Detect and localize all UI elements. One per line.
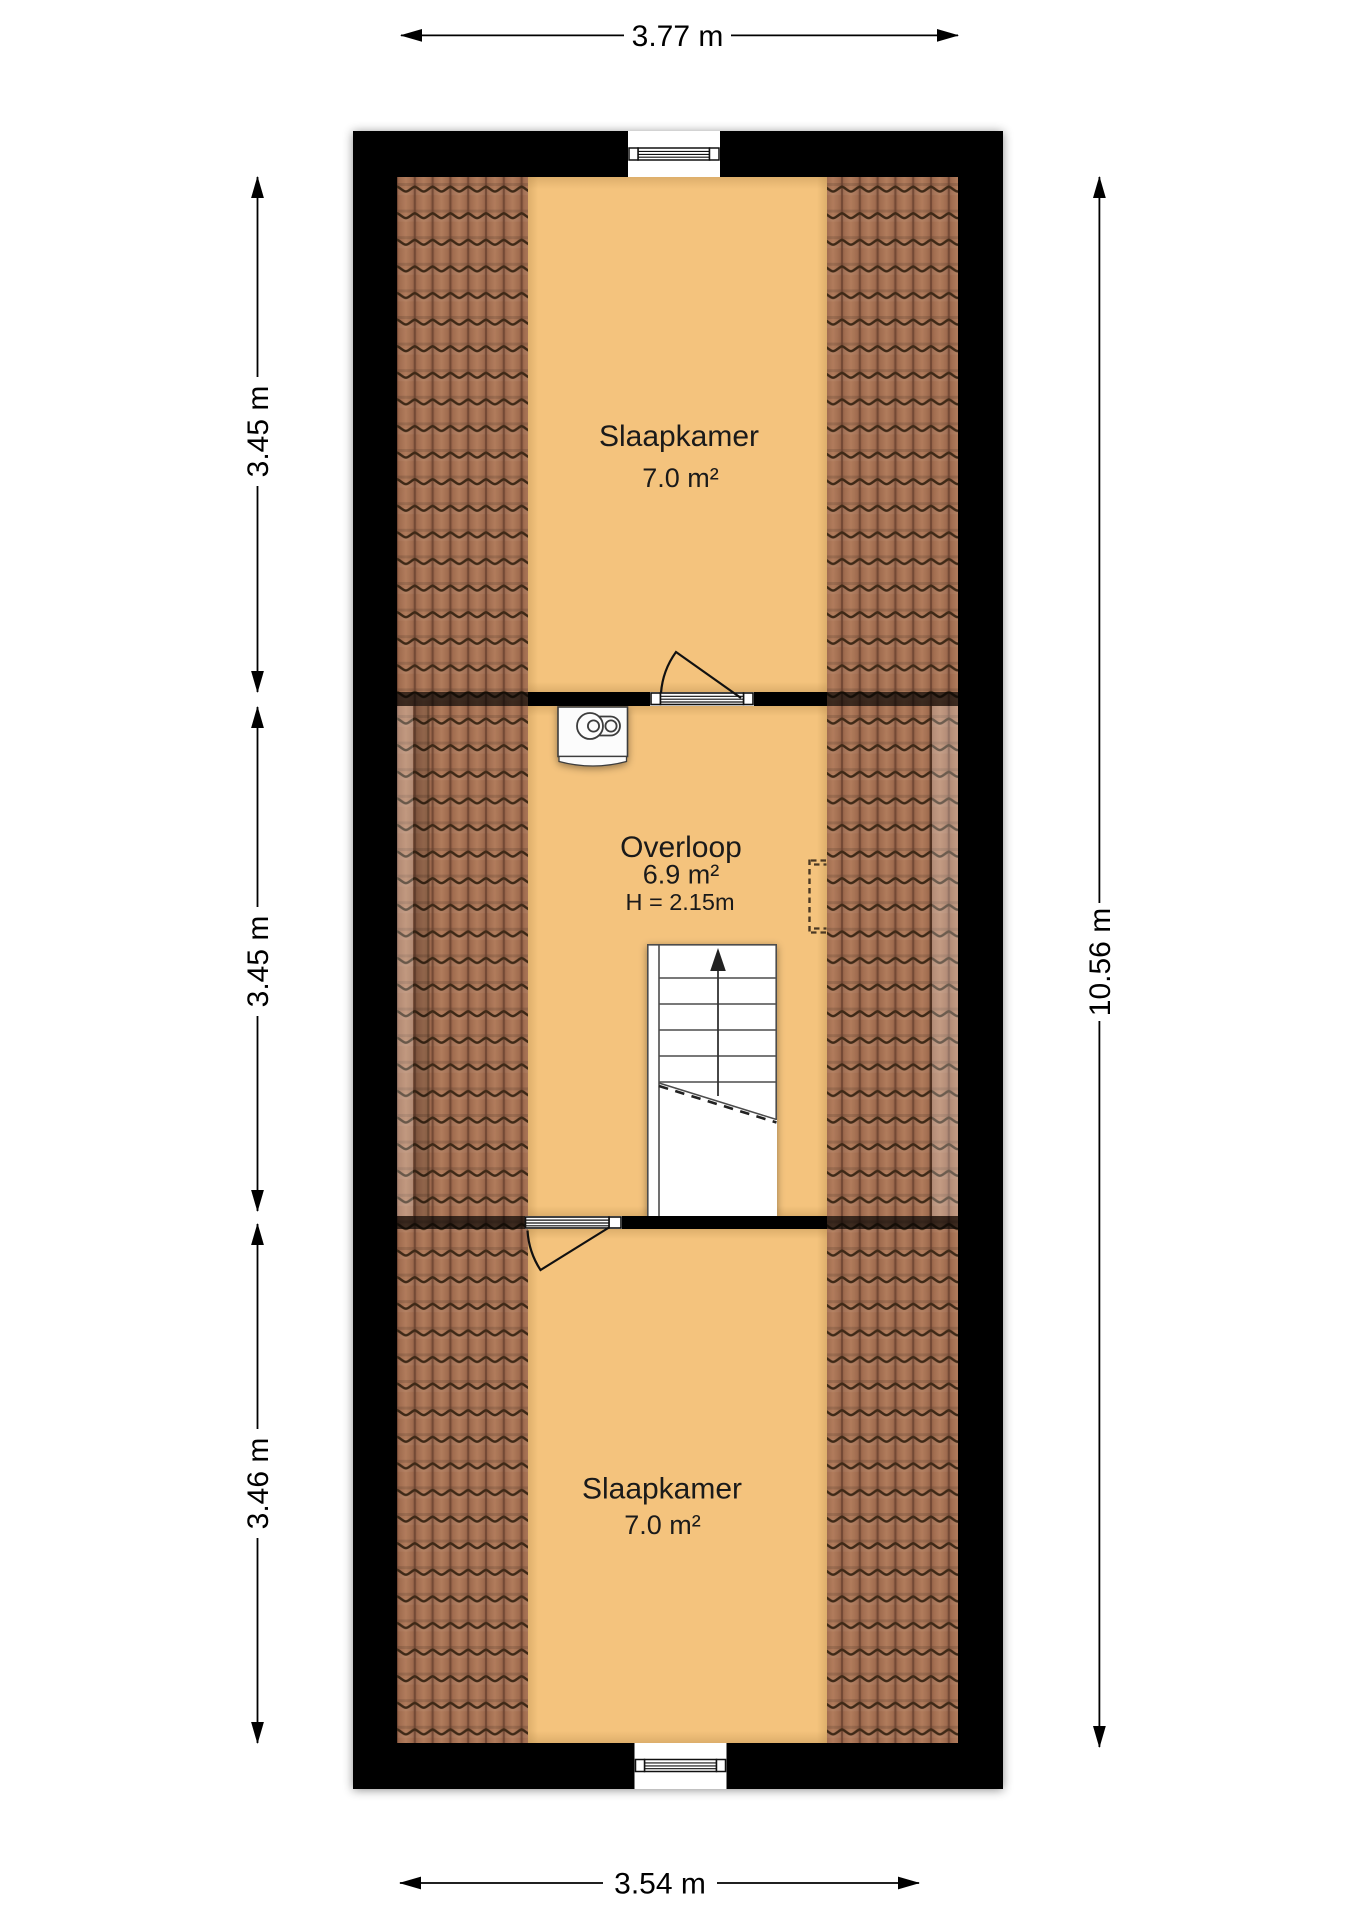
svg-text:6.9 m²: 6.9 m² xyxy=(643,860,720,890)
svg-text:H = 2.15m: H = 2.15m xyxy=(625,889,734,915)
svg-text:3.54 m: 3.54 m xyxy=(614,1868,706,1901)
svg-text:3.46 m: 3.46 m xyxy=(242,1438,275,1530)
svg-text:Slaapkamer: Slaapkamer xyxy=(599,420,759,453)
svg-text:3.45 m: 3.45 m xyxy=(242,916,275,1008)
svg-text:7.0 m²: 7.0 m² xyxy=(624,1510,701,1540)
svg-text:Slaapkamer: Slaapkamer xyxy=(582,1473,742,1506)
svg-text:3.45 m: 3.45 m xyxy=(242,386,275,478)
svg-text:3.77 m: 3.77 m xyxy=(632,20,724,53)
svg-text:10.56 m: 10.56 m xyxy=(1084,908,1117,1016)
svg-text:7.0 m²: 7.0 m² xyxy=(642,463,719,493)
